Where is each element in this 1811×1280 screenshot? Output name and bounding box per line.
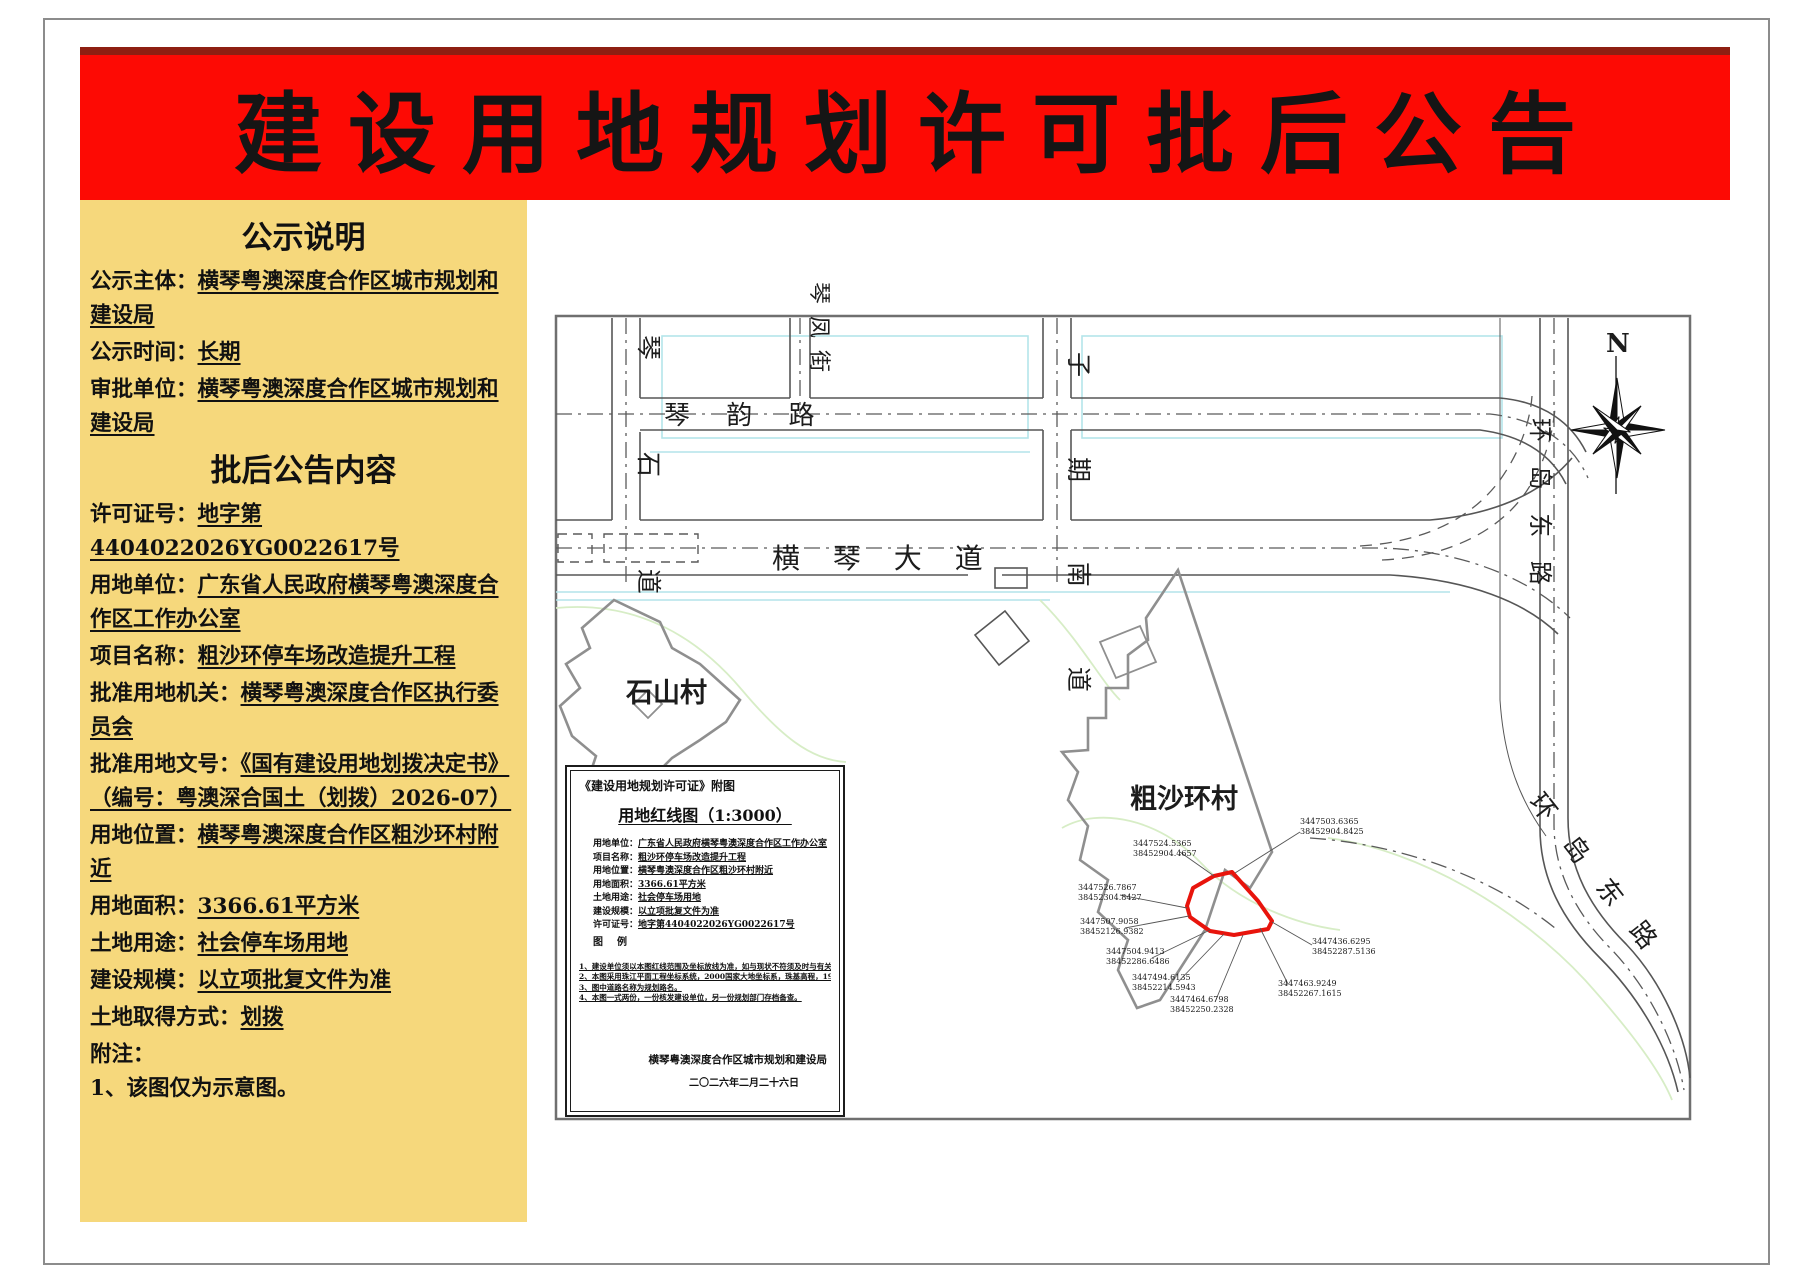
inset-field-land-area: 用地面积：3366.61平方米 (593, 879, 831, 893)
field-construction-scale: 建设规模：以立项批复文件为准 (90, 964, 517, 998)
sidebar: 公示说明 公示主体：横琴粤澳深度合作区城市规划和建设局 公示时间：长期 审批单位… (80, 200, 527, 1222)
field-notice-subject: 公示主体：横琴粤澳深度合作区城市规划和建设局 (90, 265, 517, 333)
field-land-user: 用地单位：广东省人民政府横琴粤澳深度合作区工作办公室 (90, 569, 517, 637)
inset-fields: 用地单位：广东省人民政府横琴粤澳深度合作区工作办公室 项目名称：粗沙环停车场改造… (593, 838, 831, 933)
field-label: 用地单位： (593, 839, 638, 849)
inset-note: 4、本图一式两份，一份核发建设单位，另一份规划部门存档备查。 (579, 993, 831, 1004)
field-label: 用地面积： (593, 880, 638, 890)
field-label: 公示主体： (90, 269, 198, 294)
field-label: 建设规模： (593, 907, 638, 917)
inset-date: 二〇二六年二月二十六日 (689, 1074, 799, 1089)
coord-label: 3447464.6798 (1170, 995, 1229, 1004)
field-label: 批准用地文号： (90, 752, 241, 777)
field-label: 项目名称： (593, 853, 638, 863)
coord-label: 38452304.8427 (1078, 893, 1142, 902)
field-value: 以立项批复文件为准 (638, 907, 719, 917)
coord-label: 3447526.7867 (1078, 883, 1137, 892)
field-label: 用地位置： (90, 823, 198, 848)
inset-field-project-name: 项目名称：粗沙环停车场改造提升工程 (593, 852, 831, 866)
inset-note: 1、建设单位须以本图红线范围及坐标放线为准，如与现状不符须及时与有关日常管理部门… (579, 962, 831, 973)
field-value: 社会停车场用地 (638, 893, 701, 903)
field-permit-no: 许可证号：地字第4404022026YG0022617号 (90, 498, 517, 566)
inset-redline-box: 《建设用地规划许可证》附图 用地红线图（1:3000） 用地单位：广东省人民政府… (565, 765, 845, 1117)
inset-field-land-user: 用地单位：广东省人民政府横琴粤澳深度合作区工作办公室 (593, 838, 831, 852)
coord-label: 38452267.1615 (1278, 989, 1342, 998)
note-item: 1、该图仅为示意图。 (90, 1072, 517, 1106)
inset-legend-label: 图例 (593, 933, 831, 948)
field-value: 粗沙环停车场改造提升工程 (638, 853, 746, 863)
field-value: 长期 (198, 340, 241, 365)
inset-notes: 1、建设单位须以本图红线范围及坐标放线为准，如与现状不符须及时与有关日常管理部门… (579, 962, 831, 1004)
road-label-hengqindadao: 横 琴 大 道 (772, 542, 995, 575)
field-label: 用地面积： (90, 894, 198, 919)
inset-header: 《建设用地规划许可证》附图 (579, 777, 831, 794)
field-label: 许可证号： (593, 920, 638, 930)
banner: 建设用地规划许可批后公告 (80, 47, 1730, 200)
road-label-ziqinandao: 子 期 南 道 (1064, 352, 1093, 728)
field-value: 以立项批复文件为准 (198, 968, 392, 993)
inset-agency: 横琴粤澳深度合作区城市规划和建设局 (649, 1052, 828, 1067)
field-label: 许可证号： (90, 502, 198, 527)
village-label-shishancun: 石山村 (625, 678, 707, 709)
field-value: 广东省人民政府横琴粤澳深度合作区工作办公室 (638, 839, 827, 849)
section-title-public-notice: 公示说明 (90, 212, 517, 257)
inset-title: 用地红线图（1:3000） (579, 802, 831, 826)
coord-label: 3447436.6295 (1312, 937, 1371, 946)
coord-label: 38452286.6486 (1106, 957, 1170, 966)
coord-label: 3447463.9249 (1278, 979, 1337, 988)
field-label: 公示时间： (90, 340, 198, 365)
field-value: 划拨 (241, 1005, 284, 1030)
field-notice-period: 公示时间：长期 (90, 336, 517, 370)
field-label: 用地位置： (593, 866, 638, 876)
page-title: 建设用地规划许可批后公告 (208, 64, 1602, 191)
field-value: 粗沙环停车场改造提升工程 (198, 644, 456, 669)
field-label: 土地用途： (90, 931, 198, 956)
notes-label: 附注： (90, 1038, 517, 1072)
field-value: 3366.61平方米 (198, 894, 360, 919)
field-land-area: 用地面积：3366.61平方米 (90, 890, 517, 924)
field-acquisition-method: 土地取得方式：划拨 (90, 1001, 517, 1035)
coord-label: 3447503.6365 (1300, 817, 1359, 826)
coord-label: 38452904.4657 (1133, 849, 1197, 858)
road-label-qinfengjie: 琴凤街 (806, 282, 831, 384)
inset-note: 2、本图采用珠江平面工程坐标系统，2000国家大地坐标系，珠基高程，1985年国… (579, 972, 831, 983)
field-land-location: 用地位置：横琴粤澳深度合作区粗沙环村附近 (90, 819, 517, 887)
field-project-name: 项目名称：粗沙环停车场改造提升工程 (90, 640, 517, 674)
inset-inner-frame: 《建设用地规划许可证》附图 用地红线图（1:3000） 用地单位：广东省人民政府… (570, 770, 840, 1112)
announcement-page: 建设用地规划许可批后公告 公示说明 公示主体：横琴粤澳深度合作区城市规划和建设局… (0, 0, 1811, 1280)
field-label: 项目名称： (90, 644, 198, 669)
field-approval-doc-no: 批准用地文号：《国有建设用地划拨决定书》（编号：粤澳深合国土（划拨）2026-0… (90, 748, 517, 816)
field-value: 横琴粤澳深度合作区粗沙环村附近 (638, 866, 773, 876)
inset-field-permit-no: 许可证号：地字第4404022026YG0022617号 (593, 919, 831, 933)
field-label: 批准用地机关： (90, 681, 241, 706)
road-label-qinshidao: 琴 石 道 (634, 335, 663, 636)
road-label-qinyunlu: 琴 韵 路 (664, 401, 829, 431)
coord-label: 3447507.9058 (1080, 917, 1139, 926)
coord-label: 38452287.5136 (1312, 947, 1376, 956)
village-label-cushahuancun: 粗沙环村 (1130, 784, 1238, 815)
coord-label: 38452904.8425 (1300, 827, 1364, 836)
field-label: 建设规模： (90, 968, 198, 993)
field-label: 土地用途： (593, 893, 638, 903)
field-approval-unit: 审批单位：横琴粤澳深度合作区城市规划和建设局 (90, 373, 517, 441)
inset-note: 3、图中道路名称为规划路名。 (579, 983, 831, 994)
coord-label: 38452126.9382 (1080, 927, 1144, 936)
section-title-announcement-content: 批后公告内容 (90, 445, 517, 490)
coord-label: 3447494.6135 (1132, 973, 1191, 982)
field-value: 地字第4404022026YG0022617号 (638, 920, 795, 930)
compass-north-label: N (1606, 329, 1630, 359)
field-label: 审批单位： (90, 377, 198, 402)
road-label-huandaodonglu-north: 环 岛 东 路 (1526, 418, 1554, 593)
coord-label: 38452250.2328 (1170, 1005, 1234, 1014)
inset-field-construction-scale: 建设规模：以立项批复文件为准 (593, 906, 831, 920)
field-value: 社会停车场用地 (198, 931, 349, 956)
inset-field-land-use: 土地用途：社会停车场用地 (593, 892, 831, 906)
field-label: 用地单位： (90, 573, 198, 598)
field-approving-authority: 批准用地机关：横琴粤澳深度合作区执行委员会 (90, 677, 517, 745)
coord-label: 3447524.5365 (1133, 839, 1192, 848)
field-label: 土地取得方式： (90, 1005, 241, 1030)
inset-field-land-location: 用地位置：横琴粤澳深度合作区粗沙环村附近 (593, 865, 831, 879)
field-land-use: 土地用途：社会停车场用地 (90, 927, 517, 961)
coord-label: 3447504.9413 (1106, 947, 1165, 956)
map-region: 3447524.536538452904.4657 3447503.636538… (527, 200, 1730, 1222)
coord-label: 38452214.5943 (1132, 983, 1196, 992)
field-value: 3366.61平方米 (638, 880, 706, 890)
